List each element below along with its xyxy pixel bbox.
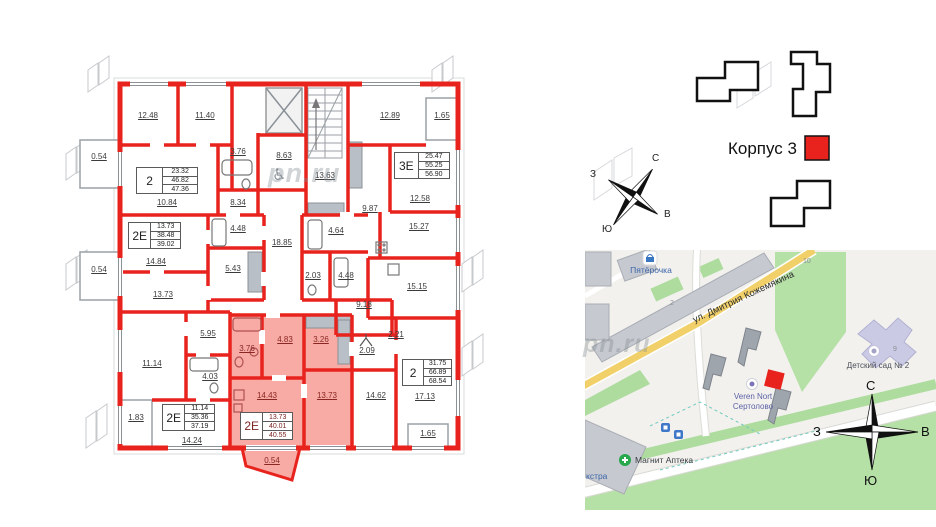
watermark-map: pn.ru [583, 330, 651, 359]
poi-kindergarten: Детский сад № 2 [838, 361, 918, 370]
korpus-3-marker [805, 136, 829, 160]
watermark-floorplan: pn.ru [268, 158, 341, 189]
poi-magnit: Магнит Аптека [635, 456, 693, 466]
site-compass-e: В [664, 209, 671, 221]
site-compass-s: Ю [602, 224, 612, 236]
map-compass-s: Ю [864, 474, 877, 489]
house-number-10: 10 [803, 258, 811, 266]
korpus-label: Корпус 3 [700, 139, 797, 159]
poi-ekstra: кстра [586, 472, 607, 482]
floorplan-panel[interactable] [60, 40, 490, 490]
poi-veren-line1: Veren Nort [722, 392, 784, 401]
listing-floorplan-page: { "colors":{"wall_red":"#e8231d","highli… [0, 0, 936, 527]
map-compass-w: З [813, 425, 821, 440]
site-compass-w: З [590, 169, 596, 181]
map-compass-e: В [921, 425, 930, 440]
site-compass-n: С [652, 153, 659, 165]
house-number-9: 9 [893, 346, 897, 354]
map-compass-n: С [866, 379, 875, 394]
house-number-2: 2 [670, 300, 674, 308]
poi-veren-line2: Сертолово [722, 402, 784, 411]
poi-pyaterochka: Пятёрочка [620, 266, 682, 276]
